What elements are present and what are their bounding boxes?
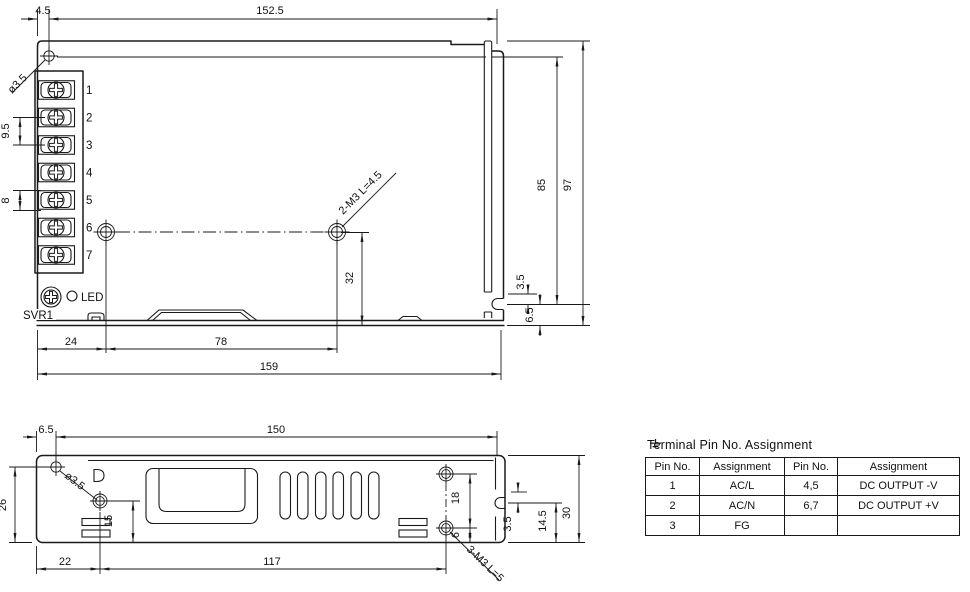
table-row: 1 AC/L 4,5 DC OUTPUT -V — [646, 476, 960, 496]
dim-mount-hole-span: 152.5 — [256, 5, 284, 17]
side-dim-screw-left-offset: 22 — [59, 556, 71, 568]
top-view: ø3.5 1 2 3 4 5 6 7 SVR1 — [0, 5, 590, 380]
side-dimension-lines-right: 18 6 3.5 14.5 30 — [450, 456, 585, 543]
table-header-row: Pin No. Assignment Pin No. Assignment — [646, 458, 960, 476]
cell-pin: 1 — [646, 476, 700, 496]
side-dim-screw-spacing: 117 — [263, 556, 281, 568]
table-title: Terminal Pin No. Assignment — [647, 438, 963, 452]
cell-pin: 2 — [646, 496, 700, 516]
dim-terminal-pitch-large: 9.5 — [0, 123, 12, 138]
dim-hole-offset-x: 4.5 — [35, 5, 50, 17]
side-dim-screw-gap: 18 — [450, 492, 462, 504]
datasheet-mechanical-page: ø3.5 1 2 3 4 5 6 7 SVR1 — [0, 0, 970, 592]
side-dim-mount-hole-span: 150 — [267, 424, 285, 436]
terminal-number-3: 3 — [86, 140, 92, 152]
vent-slots-right — [399, 519, 427, 538]
cell-pin: 4,5 — [785, 476, 838, 496]
cell-assignment: AC/L — [700, 476, 785, 496]
terminal-screw-1 — [39, 81, 75, 100]
dim-hole-spacing: 78 — [215, 336, 227, 348]
led-indicator: LED — [67, 291, 103, 304]
side-screw-callout-label: 3-M3 L=5 — [464, 544, 506, 585]
base-emboss-large — [147, 310, 257, 321]
header-assignment-right: Assignment — [838, 458, 960, 476]
dim-hole-left-offset: 24 — [65, 336, 77, 348]
cell-pin: 6,7 — [785, 496, 838, 516]
cell-assignment-fg: FG — [700, 516, 785, 536]
terminal-number-6: 6 — [86, 223, 92, 235]
dim-overall-width: 159 — [260, 361, 278, 373]
terminal-screw-6 — [39, 218, 75, 237]
terminal-screw-5 — [39, 191, 75, 210]
cell-assignment — [838, 516, 960, 536]
cover-edge-strip — [484, 41, 491, 318]
table-row: 2 AC/N 6,7 DC OUTPUT +V — [646, 496, 960, 516]
svr-potentiometer: SVR1 — [22, 287, 61, 322]
led-label: LED — [81, 292, 103, 304]
earth-ground-icon — [649, 438, 662, 451]
dimension-lines-top: 4.5 152.5 — [21, 5, 497, 50]
dimension-lines-bottom: 24 78 159 32 — [38, 233, 502, 381]
side-dim-hole-height: 26 — [0, 499, 9, 511]
dim-side-notch: 3.5 — [515, 274, 527, 289]
d-shaped-cutout — [94, 470, 104, 482]
screw-callout-label: 2-M3 L=4.5 — [337, 169, 385, 217]
pin-assignment-section: Terminal Pin No. Assignment Pin No. Assi… — [645, 438, 963, 536]
terminal-screw-4 — [39, 163, 75, 182]
terminal-number-5: 5 — [86, 195, 92, 207]
led-circle-icon — [67, 291, 77, 301]
svr-label: SVR1 — [23, 310, 53, 322]
terminal-number-4: 4 — [86, 168, 93, 180]
case-outline — [37, 41, 505, 326]
base-foot — [88, 313, 104, 321]
table-row: 3 FG — [646, 516, 960, 536]
base-screw-hole-left — [94, 220, 119, 245]
cell-assignment: DC OUTPUT -V — [838, 476, 960, 496]
terminal-number-7: 7 — [86, 250, 92, 262]
dim-terminal-pitch-small: 8 — [0, 197, 12, 203]
side-dim-slot-offset: 3.5 — [502, 516, 514, 531]
keyhole-slot — [492, 299, 503, 310]
terminal-screw-7 — [39, 246, 75, 265]
side-dim-overall-height: 30 — [561, 507, 573, 519]
terminal-block: 1 2 3 4 5 6 7 — [35, 71, 93, 273]
dim-side-hole-edge: 6.5 — [524, 307, 536, 322]
dim-screw-hole-y: 32 — [344, 272, 356, 284]
cell-assignment: DC OUTPUT +V — [838, 496, 960, 516]
header-pin-no-right: Pin No. — [785, 458, 838, 476]
dimension-lines-right: 85 97 3.5 6.5 — [492, 41, 590, 336]
pin-assignment-table: Pin No. Assignment Pin No. Assignment 1 … — [645, 457, 960, 536]
vent-louvers — [280, 472, 379, 519]
side-view: ø3.5 3-M3 L=5 6.5 150 26 15 — [0, 424, 585, 585]
cell-assignment: AC/N — [700, 496, 785, 516]
side-dim-hole-offset-x: 6.5 — [38, 424, 53, 436]
side-dim-slot-edge: 14.5 — [537, 510, 549, 531]
side-keyhole-slot — [495, 498, 505, 509]
side-dim-screw-hole-y: 15 — [103, 515, 115, 527]
dim-hole-diameter: ø3.5 — [6, 72, 30, 96]
dim-overall-height: 97 — [562, 179, 574, 191]
dim-body-height: 85 — [536, 179, 548, 191]
cell-pin — [785, 516, 838, 536]
cell-pin: 3 — [646, 516, 700, 536]
side-dim-screw-edge: 6 — [450, 532, 462, 538]
window-cutout — [146, 469, 258, 524]
terminal-number-2: 2 — [86, 113, 92, 125]
header-assignment-left: Assignment — [700, 458, 785, 476]
header-pin-no-left: Pin No. — [646, 458, 700, 476]
fg-label: FG — [734, 520, 749, 532]
terminal-number-1: 1 — [86, 85, 92, 97]
